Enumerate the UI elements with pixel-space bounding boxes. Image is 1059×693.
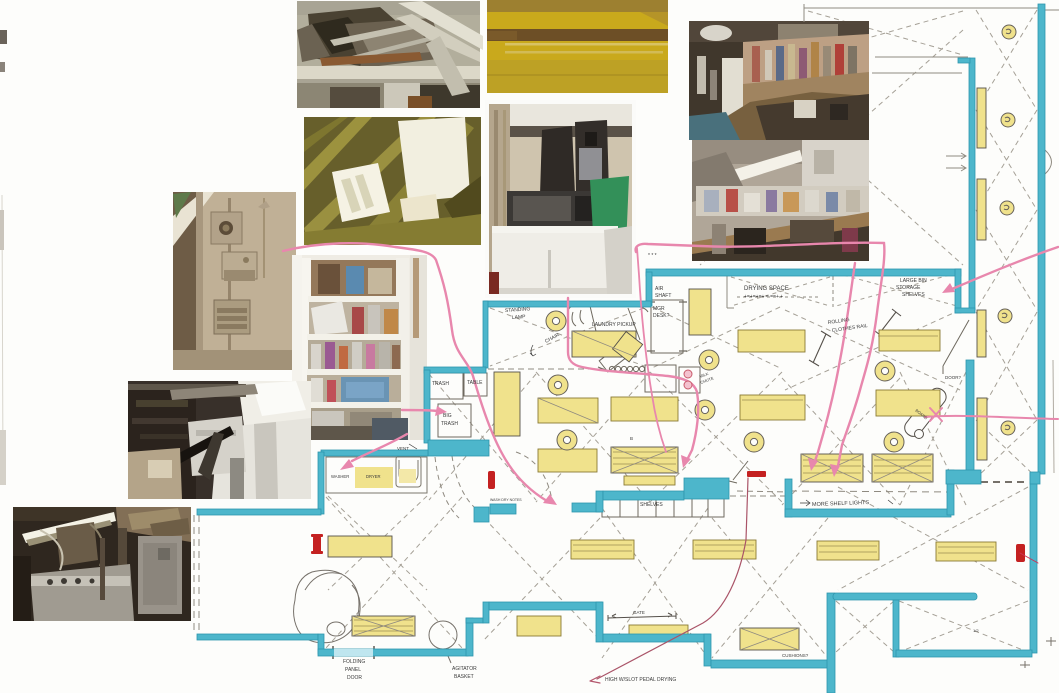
svg-text:BIG: BIG (443, 413, 452, 419)
svg-text:BASKET: BASKET (454, 674, 474, 680)
svg-text:DOOR: DOOR (347, 675, 362, 681)
svg-text:TRASH: TRASH (432, 381, 449, 387)
svg-text:SHAFT: SHAFT (655, 293, 671, 299)
svg-text:B: B (630, 436, 633, 441)
svg-text:SHELVES: SHELVES (902, 292, 925, 298)
svg-text:* * *: * * * (648, 253, 657, 259)
svg-text:WASH DRY NOTES: WASH DRY NOTES (490, 498, 522, 502)
svg-text:GATE: GATE (633, 610, 645, 615)
svg-text:STORAGE: STORAGE (896, 285, 921, 291)
svg-text:FOLDING: FOLDING (343, 659, 365, 665)
svg-text:VENT: VENT (397, 446, 409, 451)
svg-text:TABLE: TABLE (467, 380, 483, 386)
svg-text:LAUNDRY PICKUP: LAUNDRY PICKUP (592, 322, 636, 328)
svg-text:CUSHIONS?: CUSHIONS? (782, 653, 809, 658)
svg-text:LAMP: LAMP (512, 314, 527, 321)
svg-text:DESK?: DESK? (653, 313, 670, 319)
svg-text:PANEL: PANEL (345, 667, 361, 673)
svg-text:+=+=+=+ = ==+ +: +=+=+=+ = ==+ + (744, 294, 783, 300)
svg-text:DRYING SPACE: DRYING SPACE (744, 286, 789, 292)
svg-text:1/2: 1/2 (973, 628, 979, 633)
svg-text:DRYER: DRYER (366, 474, 381, 479)
svg-text:HIGH W/SLOT PEDAL DRYING: HIGH W/SLOT PEDAL DRYING (605, 677, 676, 683)
svg-text:SHELVES: SHELVES (640, 502, 663, 508)
svg-text:WASHER: WASHER (331, 474, 349, 479)
svg-text:TRASH: TRASH (441, 421, 458, 427)
svg-text:MGR: MGR (653, 306, 665, 312)
svg-text:AGITATOR: AGITATOR (452, 666, 477, 672)
svg-text:DOOR?: DOOR? (945, 375, 962, 380)
svg-text:AIR: AIR (655, 286, 664, 292)
svg-text:LARGE BIN: LARGE BIN (900, 278, 927, 284)
